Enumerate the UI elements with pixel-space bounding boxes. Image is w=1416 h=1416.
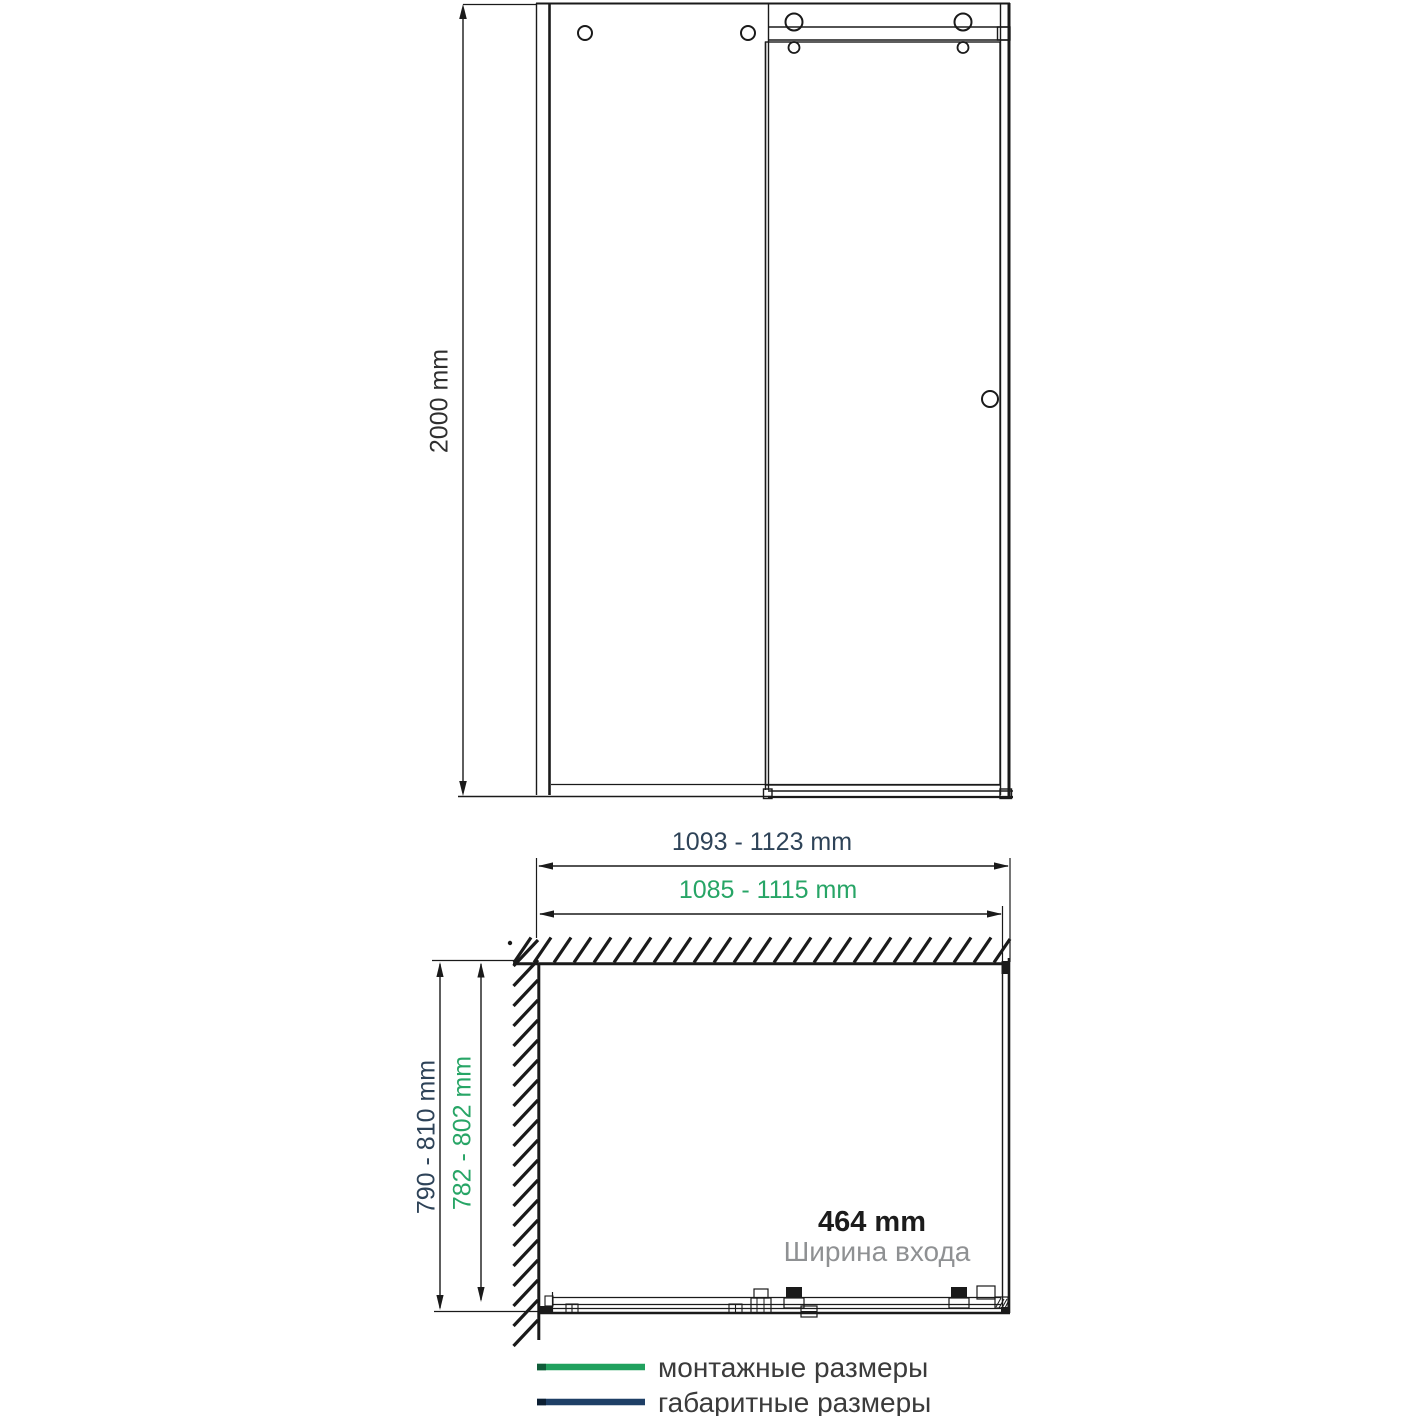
roller [786, 14, 803, 31]
front-view: 2000 mm [426, 3, 1013, 799]
wall-hatching-left [514, 940, 539, 1346]
arrow-left-icon [538, 862, 553, 869]
mounting-width-dimension: 1085 - 1115 mm [539, 876, 1003, 962]
arrow-right-icon [987, 910, 1002, 917]
hatch-lines [514, 940, 539, 1346]
legend: монтажные размеры габаритные размеры [537, 1352, 931, 1416]
mounting-width-label: 1085 - 1115 mm [679, 876, 857, 904]
plan-view: 1093 - 1123 mm 1085 - 1115 mm 790 - 810 … [413, 828, 1010, 1346]
legend-overall-label: габаритные размеры [658, 1387, 931, 1416]
side-panel [1002, 958, 1011, 1313]
mounting-hole [578, 26, 592, 40]
arrow-right-icon [994, 862, 1009, 869]
roller-screw [789, 42, 800, 53]
arrow-down-icon [459, 781, 467, 796]
legend-mounting-label: монтажные размеры [658, 1352, 928, 1383]
arrow-left-icon [539, 910, 554, 917]
arrow-up-icon [477, 963, 484, 978]
hatch-lines [514, 938, 1010, 963]
overall-width-label: 1093 - 1123 mm [672, 828, 852, 856]
right-wall-profile [1001, 3, 1010, 797]
carriage [751, 1298, 771, 1313]
entry-width-value: 464 mm [818, 1206, 926, 1238]
height-dimension-label: 2000 mm [426, 349, 454, 453]
arrow-down-icon [477, 1287, 484, 1302]
drawing-canvas: 2000 mm [0, 0, 1416, 1416]
fixed-glass-panel [458, 3, 1010, 797]
arrow-down-icon [436, 1295, 443, 1310]
shower-enclosure-technical-drawing: 2000 mm [0, 0, 1416, 1416]
arrow-up-icon [459, 4, 467, 19]
roller-carriage [951, 1287, 967, 1298]
arrow-up-icon [436, 962, 443, 977]
roller [955, 14, 972, 31]
roller-carriage [786, 1287, 802, 1298]
legend-swatch-cap [537, 1364, 546, 1371]
door-rail-assembly [539, 1286, 1011, 1317]
entry-width-caption: Ширина входа [784, 1236, 971, 1267]
wall-hatching-top [508, 938, 1010, 964]
sliding-door-panel [766, 42, 1001, 785]
top-track [768, 14, 1010, 54]
wall-bracket [539, 1306, 553, 1313]
door-handle [982, 391, 998, 407]
wall-bracket [1002, 961, 1011, 974]
drawing-dot [508, 941, 512, 945]
overall-depth-label: 790 - 810 mm [413, 1060, 441, 1214]
left-wall-profile [537, 3, 550, 795]
carriage [754, 1289, 768, 1298]
roller-screw [958, 42, 969, 53]
bottom-rail [764, 789, 1014, 799]
mounting-hole [741, 26, 755, 40]
legend-swatch-cap [537, 1399, 546, 1406]
height-dimension: 2000 mm [426, 4, 537, 796]
mounting-depth-dimension: 782 - 802 mm [449, 963, 485, 1303]
mounting-depth-label: 782 - 802 mm [449, 1056, 477, 1210]
